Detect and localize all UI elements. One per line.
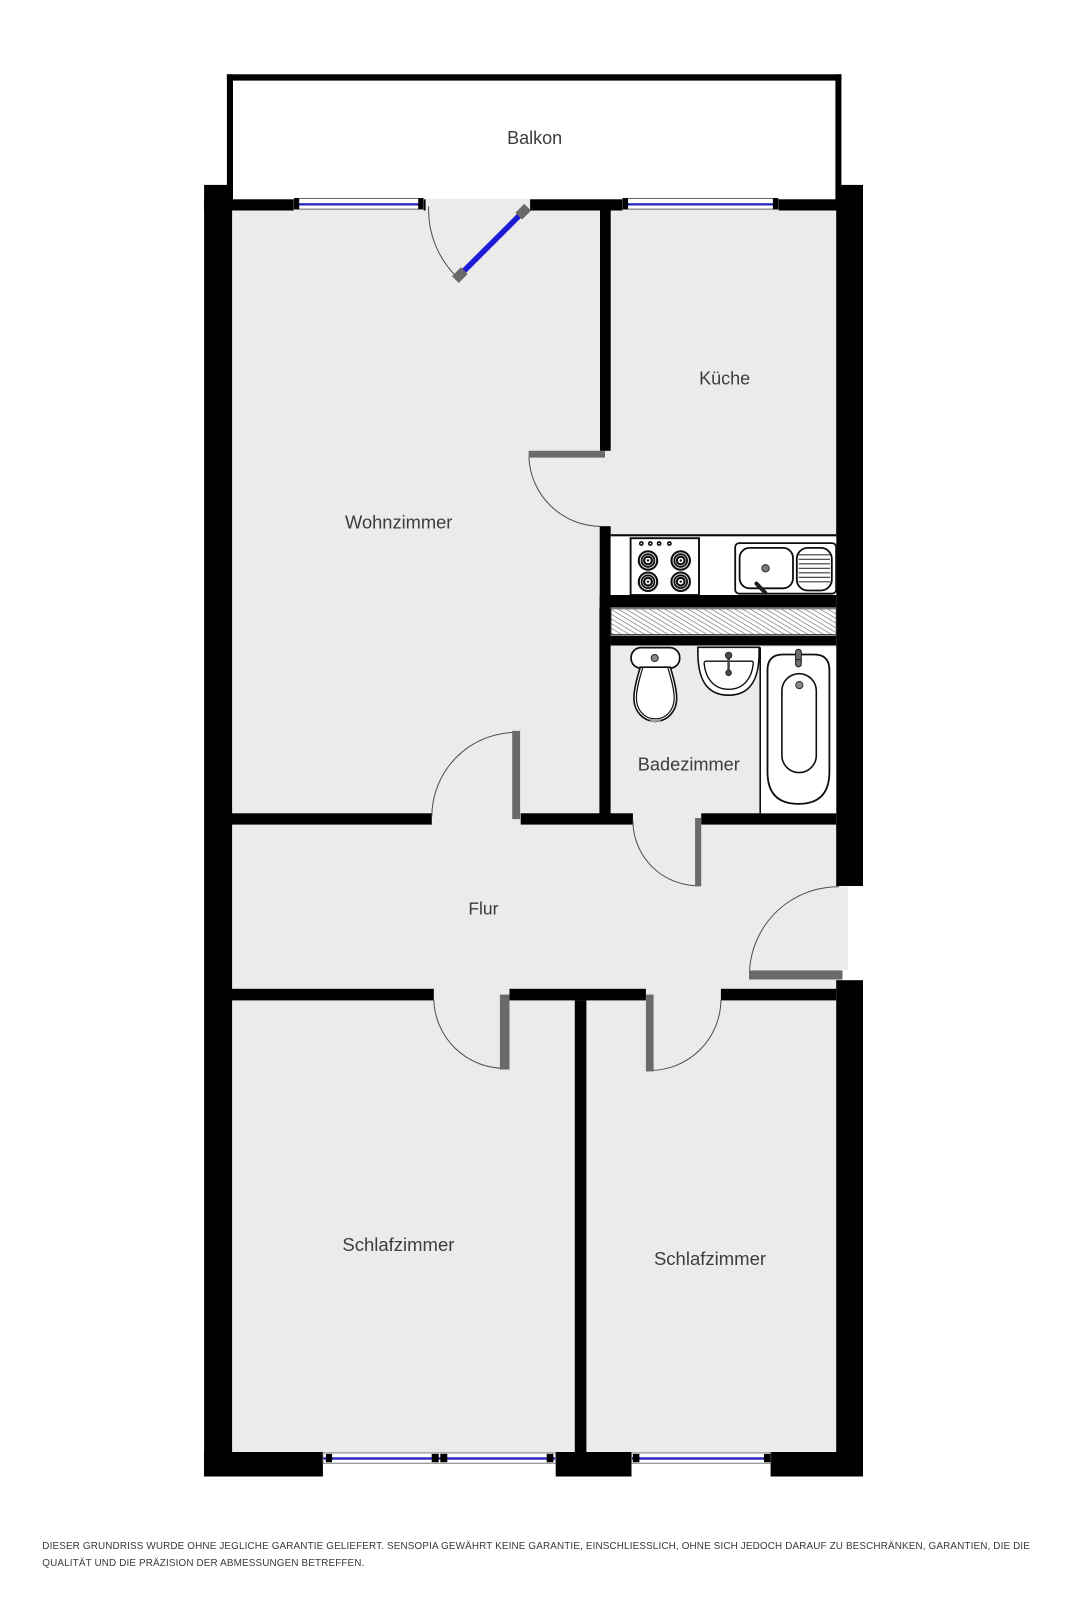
svg-text:Küche: Küche bbox=[699, 369, 750, 389]
svg-text:Balkon: Balkon bbox=[507, 128, 562, 148]
svg-text:Schlafzimmer: Schlafzimmer bbox=[654, 1248, 766, 1269]
svg-text:DIESER GRUNDRISS WURDE OHNE JE: DIESER GRUNDRISS WURDE OHNE JEGLICHE GAR… bbox=[42, 1541, 1030, 1552]
svg-text:Badezimmer: Badezimmer bbox=[638, 754, 740, 774]
svg-text:Flur: Flur bbox=[468, 899, 498, 919]
svg-text:Wohnzimmer: Wohnzimmer bbox=[345, 512, 452, 533]
svg-text:QUALITÄT UND DIE PRÄZISION DER: QUALITÄT UND DIE PRÄZISION DER ABMESSUNG… bbox=[42, 1558, 364, 1569]
svg-text:Schlafzimmer: Schlafzimmer bbox=[342, 1234, 454, 1255]
